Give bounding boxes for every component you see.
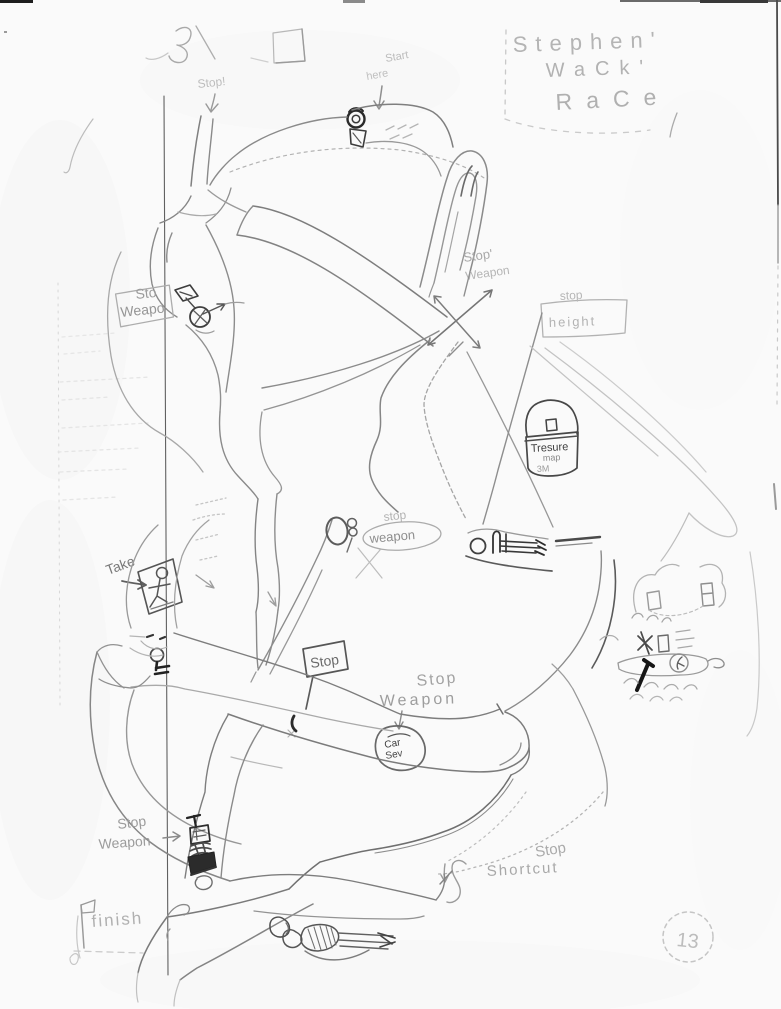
svg-text:stop: stop: [559, 288, 583, 303]
svg-text:finish: finish: [91, 908, 144, 931]
svg-text:3M: 3M: [537, 463, 550, 474]
svg-text:Sto: Sto: [135, 284, 158, 302]
svg-text:Stephen': Stephen': [512, 27, 663, 57]
svg-text:Weapon: Weapon: [380, 690, 458, 710]
svg-text:Stop: Stop: [416, 669, 458, 690]
svg-text:WaCk': WaCk': [545, 56, 653, 82]
svg-text:map: map: [543, 452, 561, 463]
svg-text:13: 13: [675, 929, 699, 953]
svg-text:Stop!: Stop!: [197, 74, 226, 91]
svg-text:height: height: [549, 313, 597, 330]
